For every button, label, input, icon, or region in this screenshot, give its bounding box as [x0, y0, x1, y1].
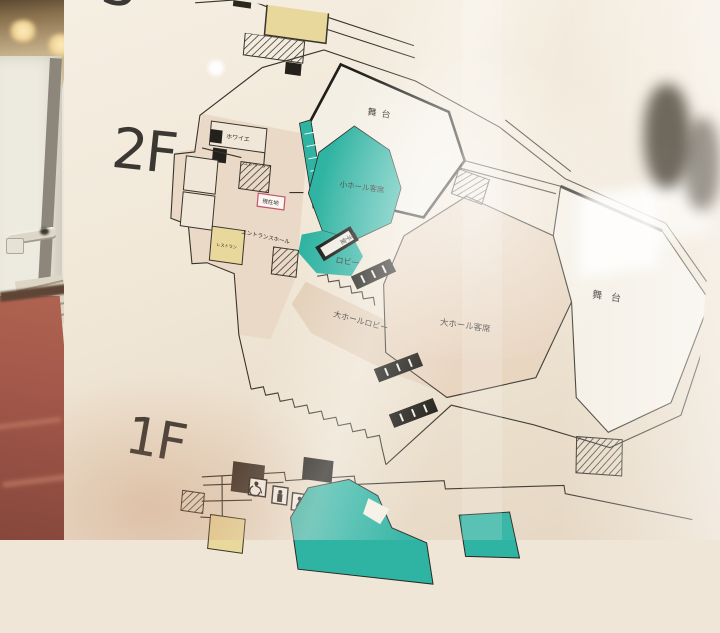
- stair-core: [285, 62, 302, 76]
- restroom-person-icon: [272, 486, 288, 505]
- wheelchair-icon: [248, 478, 266, 498]
- small-hall-1f-area: [456, 505, 524, 564]
- stairs: [181, 490, 205, 513]
- west-room: [183, 156, 218, 194]
- stair-core: [233, 0, 252, 9]
- west-room: [180, 192, 215, 230]
- room-1f: [208, 514, 246, 553]
- small-hall-1f-area: [286, 472, 441, 588]
- person-reflection: [684, 118, 720, 210]
- photo-floor-guide-sign: { "scene": { "description": "Photograph …: [0, 0, 720, 540]
- ceiling-light-icon: [8, 20, 38, 42]
- stair-core: [302, 457, 334, 483]
- handrail-object: [40, 228, 49, 235]
- stairs: [271, 247, 298, 277]
- elevator-icon: [210, 129, 223, 144]
- handrail-post: [6, 238, 24, 254]
- large-hall-seating-area: [375, 186, 580, 414]
